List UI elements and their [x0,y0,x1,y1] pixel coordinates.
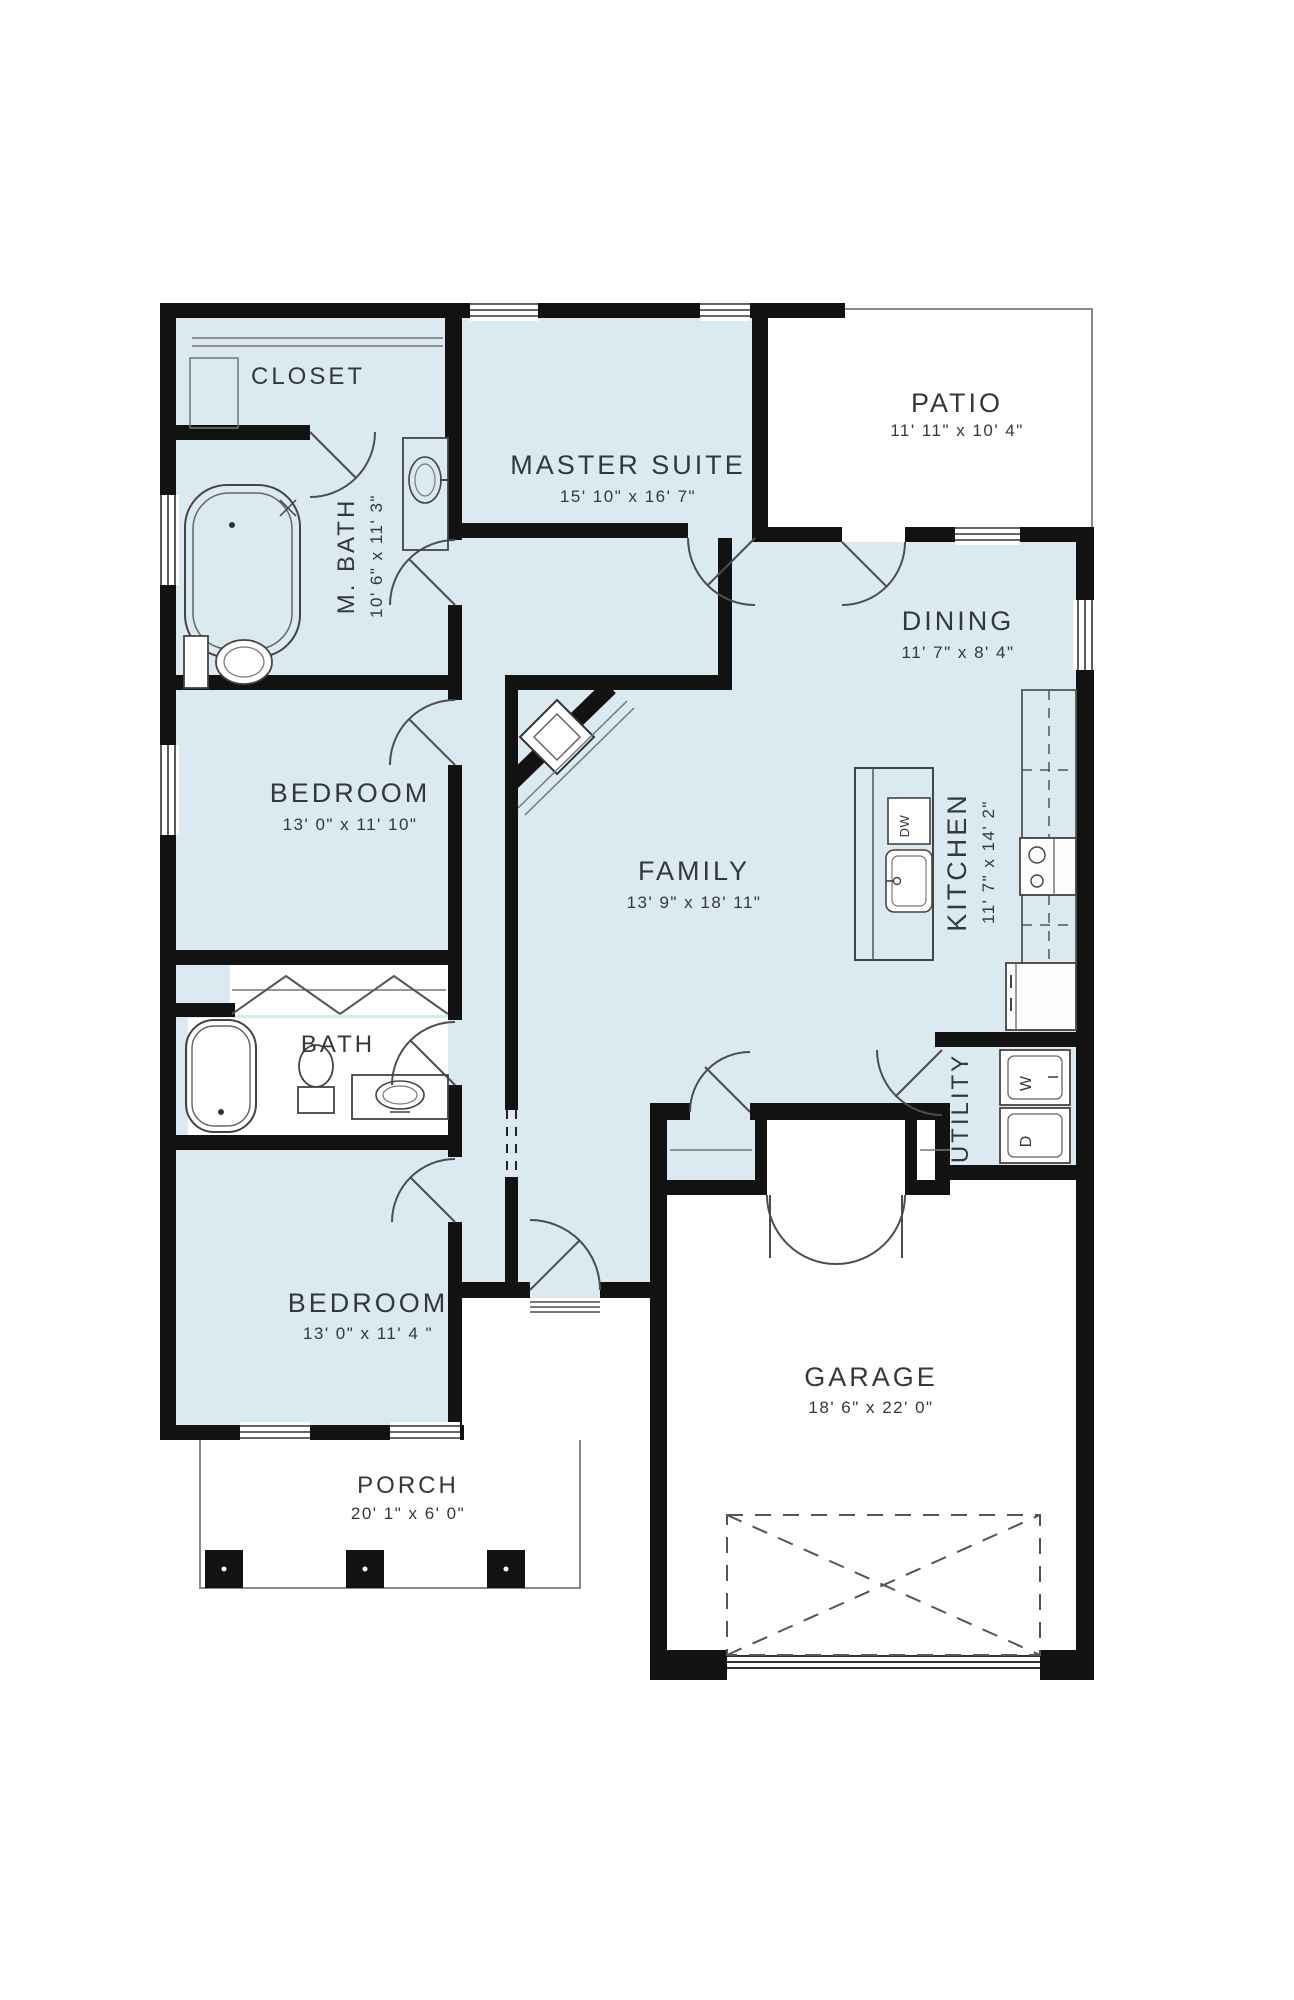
window-bedroom-lower-2 [390,1422,460,1443]
wall-family-west-upper [505,690,518,1110]
label-dining-dims: 11' 7" x 8' 4" [902,643,1015,662]
label-garage: GARAGE [804,1362,938,1392]
label-dishwasher: DW [897,814,912,837]
wall-garage-bottom-left [650,1650,727,1680]
tub-drain [229,522,235,528]
window-bedroom-upper-left [157,745,179,835]
floor-plan-page: CLOSET MASTER SUITE 15' 10" x 16' 7" PAT… [0,0,1294,2000]
wardrobe-area [230,963,448,1015]
window-master-top-1 [470,300,538,321]
dryer-unit [1000,1108,1070,1163]
wall-bedroom-lower-east-b [448,1222,462,1440]
wall-left [160,303,176,1440]
wall-landing-bottom-a [667,1180,767,1195]
tub-drain [218,1109,224,1115]
label-bedroom-lower-dims: 13' 0" x 11' 4 " [303,1324,433,1343]
floor-entry-hall [518,1103,650,1298]
wall-master-bottom-a [460,523,688,538]
wall-corridor-west-a [448,690,462,700]
wall-bedroom-upper-bottom [160,950,462,965]
label-patio: PATIO [911,388,1003,418]
wall-garage-west [650,1103,667,1680]
wall-entry-bottom-a [462,1282,530,1298]
label-master-suite-dims: 15' 10" x 16' 7" [560,487,696,506]
window-dining-north [955,524,1020,545]
label-bath: BATH [301,1031,375,1058]
master-toilet [184,636,272,688]
window-dining-right [1073,600,1097,670]
wall-bedroom-lower-bottom-a [160,1425,240,1440]
wall-patio-dining-b [905,527,955,542]
label-porch-dims: 20' 1" x 6' 0" [351,1504,465,1523]
label-dining: DINING [902,606,1015,636]
label-porch: PORCH [357,1472,459,1499]
label-master-suite: MASTER SUITE [510,450,746,480]
garage-landing-area [767,1120,905,1182]
window-mbath-left [157,495,179,585]
garage-area [667,1180,1076,1665]
wall-corridor-west-b [448,765,462,1020]
wall-mbath-east-lower [448,605,462,675]
washer-unit [1000,1050,1070,1105]
wall-family-west-lower [505,1177,518,1282]
wall-patio-dining-a [768,527,842,542]
window-bedroom-lower-1 [240,1422,310,1443]
kitchen-refrigerator [1006,963,1076,1030]
wall-right-upper [1076,527,1094,600]
label-patio-dims: 11' 11" x 10' 4" [890,421,1024,440]
label-kitchen-dims: 11' 7" x 14' 2" [979,800,998,924]
wall-family-top [505,675,732,690]
label-bedroom-upper-dims: 13' 0" x 11' 10" [283,815,418,834]
wall-entry-bottom-b [600,1282,650,1298]
label-washer: W [1018,1075,1035,1091]
porch-columns [205,1550,525,1588]
wall-utility-bottom [935,1165,1076,1180]
wall-wardrobe-stub [176,1003,235,1017]
wall-hall-dining-divider [718,538,732,690]
label-utility: UTILITY [947,1053,974,1163]
wall-bedroom-lower-bottom-c [460,1425,464,1440]
wall-mbath-east-upper [448,438,462,540]
wall-landing-pantry-partition [905,1120,917,1182]
label-family: FAMILY [638,856,750,886]
wall-master-right [752,303,768,542]
wall-utility-top [935,1032,1076,1047]
label-master-bath: M. BATH [333,498,360,615]
label-dryer: D [1018,1135,1035,1148]
label-garage-dims: 18' 6" x 22' 0" [808,1398,933,1417]
window-master-top-2 [700,300,750,321]
label-master-bath-dims: 10' 6" x 11' 3" [367,494,386,618]
wall-corridor-west-c [448,1085,462,1135]
kitchen-range [1020,838,1076,895]
label-bedroom-upper: BEDROOM [270,778,431,808]
wall-closet-right [445,303,462,438]
wall-master-bottom-b [755,523,768,538]
floor-plan-drawing: CLOSET MASTER SUITE 15' 10" x 16' 7" PAT… [0,0,1294,2000]
wall-landing-bottom-b [905,1180,950,1195]
wall-right-lower [1076,670,1094,1680]
label-kitchen: KITCHEN [942,792,972,932]
wall-closet-landing-partition [755,1120,767,1182]
wall-garage-bottom-right [1040,1650,1094,1680]
wall-bath-bottom [160,1135,462,1150]
label-closet: CLOSET [251,363,365,390]
wall-bedroom-lower-east-a [448,1150,462,1157]
wall-bedroom-lower-bottom-b [310,1425,390,1440]
label-bedroom-lower: BEDROOM [288,1288,449,1318]
label-family-dims: 13' 9" x 18' 11" [627,893,762,912]
